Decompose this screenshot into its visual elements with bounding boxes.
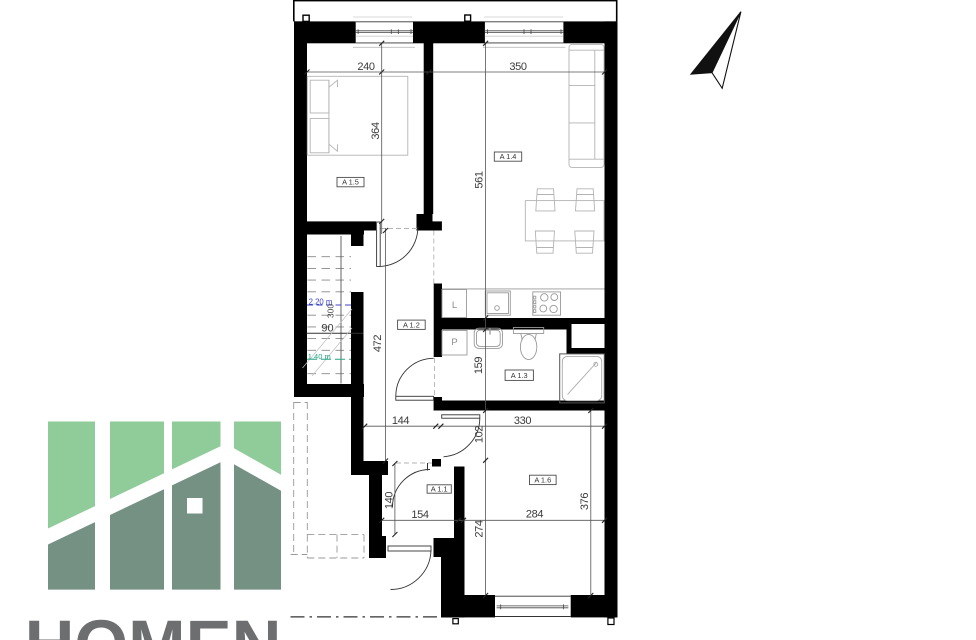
svg-text:A 1.3: A 1.3: [511, 371, 528, 380]
svg-text:561: 561: [474, 171, 486, 188]
svg-text:364: 364: [370, 122, 382, 139]
svg-text:140: 140: [384, 492, 396, 509]
svg-text:L: L: [452, 300, 457, 311]
svg-text:274: 274: [473, 520, 485, 537]
svg-text:HOMEN: HOMEN: [25, 606, 282, 640]
svg-text:159: 159: [473, 357, 485, 374]
svg-text:A 1.1: A 1.1: [431, 485, 448, 494]
svg-text:376: 376: [579, 493, 591, 510]
svg-text:A 1.4: A 1.4: [500, 152, 517, 161]
svg-text:472: 472: [372, 335, 384, 352]
svg-text:144: 144: [392, 415, 409, 427]
svg-text:330: 330: [514, 415, 531, 427]
svg-text:90: 90: [321, 323, 333, 335]
svg-text:A 1.5: A 1.5: [342, 178, 359, 187]
svg-text:A 1.2: A 1.2: [403, 320, 420, 329]
svg-text:284: 284: [526, 509, 543, 521]
svg-text:1.40 m: 1.40 m: [308, 352, 331, 361]
svg-text:102: 102: [473, 426, 485, 443]
svg-text:240: 240: [357, 61, 374, 73]
svg-text:300: 300: [326, 304, 336, 318]
svg-text:350: 350: [509, 61, 526, 73]
svg-text:A 1.6: A 1.6: [534, 476, 551, 485]
svg-text:P: P: [451, 337, 457, 348]
svg-text:154: 154: [411, 509, 428, 521]
